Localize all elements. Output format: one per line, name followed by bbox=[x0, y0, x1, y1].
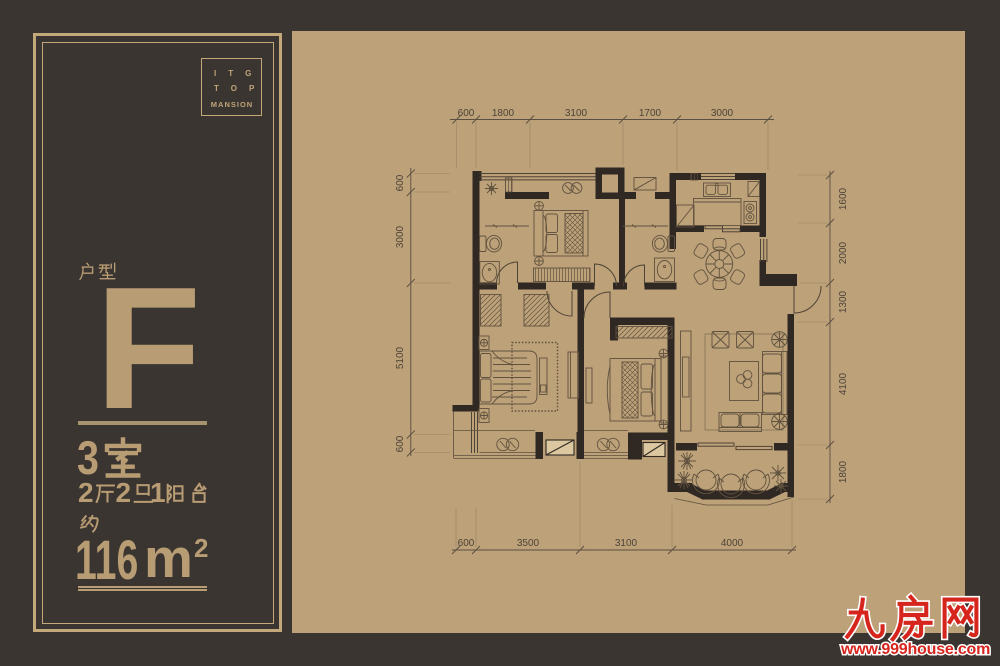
svg-text:3500: 3500 bbox=[517, 538, 540, 549]
svg-text:2000: 2000 bbox=[838, 241, 849, 264]
svg-text:600: 600 bbox=[458, 538, 475, 549]
svg-text:1700: 1700 bbox=[639, 108, 662, 119]
svg-text:3000: 3000 bbox=[711, 108, 734, 119]
svg-text:3100: 3100 bbox=[565, 108, 588, 119]
svg-text:www.999house.com: www.999house.com bbox=[840, 641, 990, 658]
svg-text:3000: 3000 bbox=[395, 225, 406, 248]
svg-text:600: 600 bbox=[395, 174, 406, 191]
svg-text:4000: 4000 bbox=[721, 538, 744, 549]
svg-text:1300: 1300 bbox=[838, 290, 849, 313]
svg-text:1800: 1800 bbox=[492, 108, 515, 119]
svg-text:600: 600 bbox=[395, 435, 406, 452]
svg-text:600: 600 bbox=[458, 108, 475, 119]
svg-text:1600: 1600 bbox=[838, 187, 849, 210]
svg-text:3100: 3100 bbox=[615, 538, 638, 549]
svg-text:4100: 4100 bbox=[838, 372, 849, 395]
svg-text:5100: 5100 bbox=[395, 346, 406, 369]
svg-text:1800: 1800 bbox=[838, 460, 849, 483]
